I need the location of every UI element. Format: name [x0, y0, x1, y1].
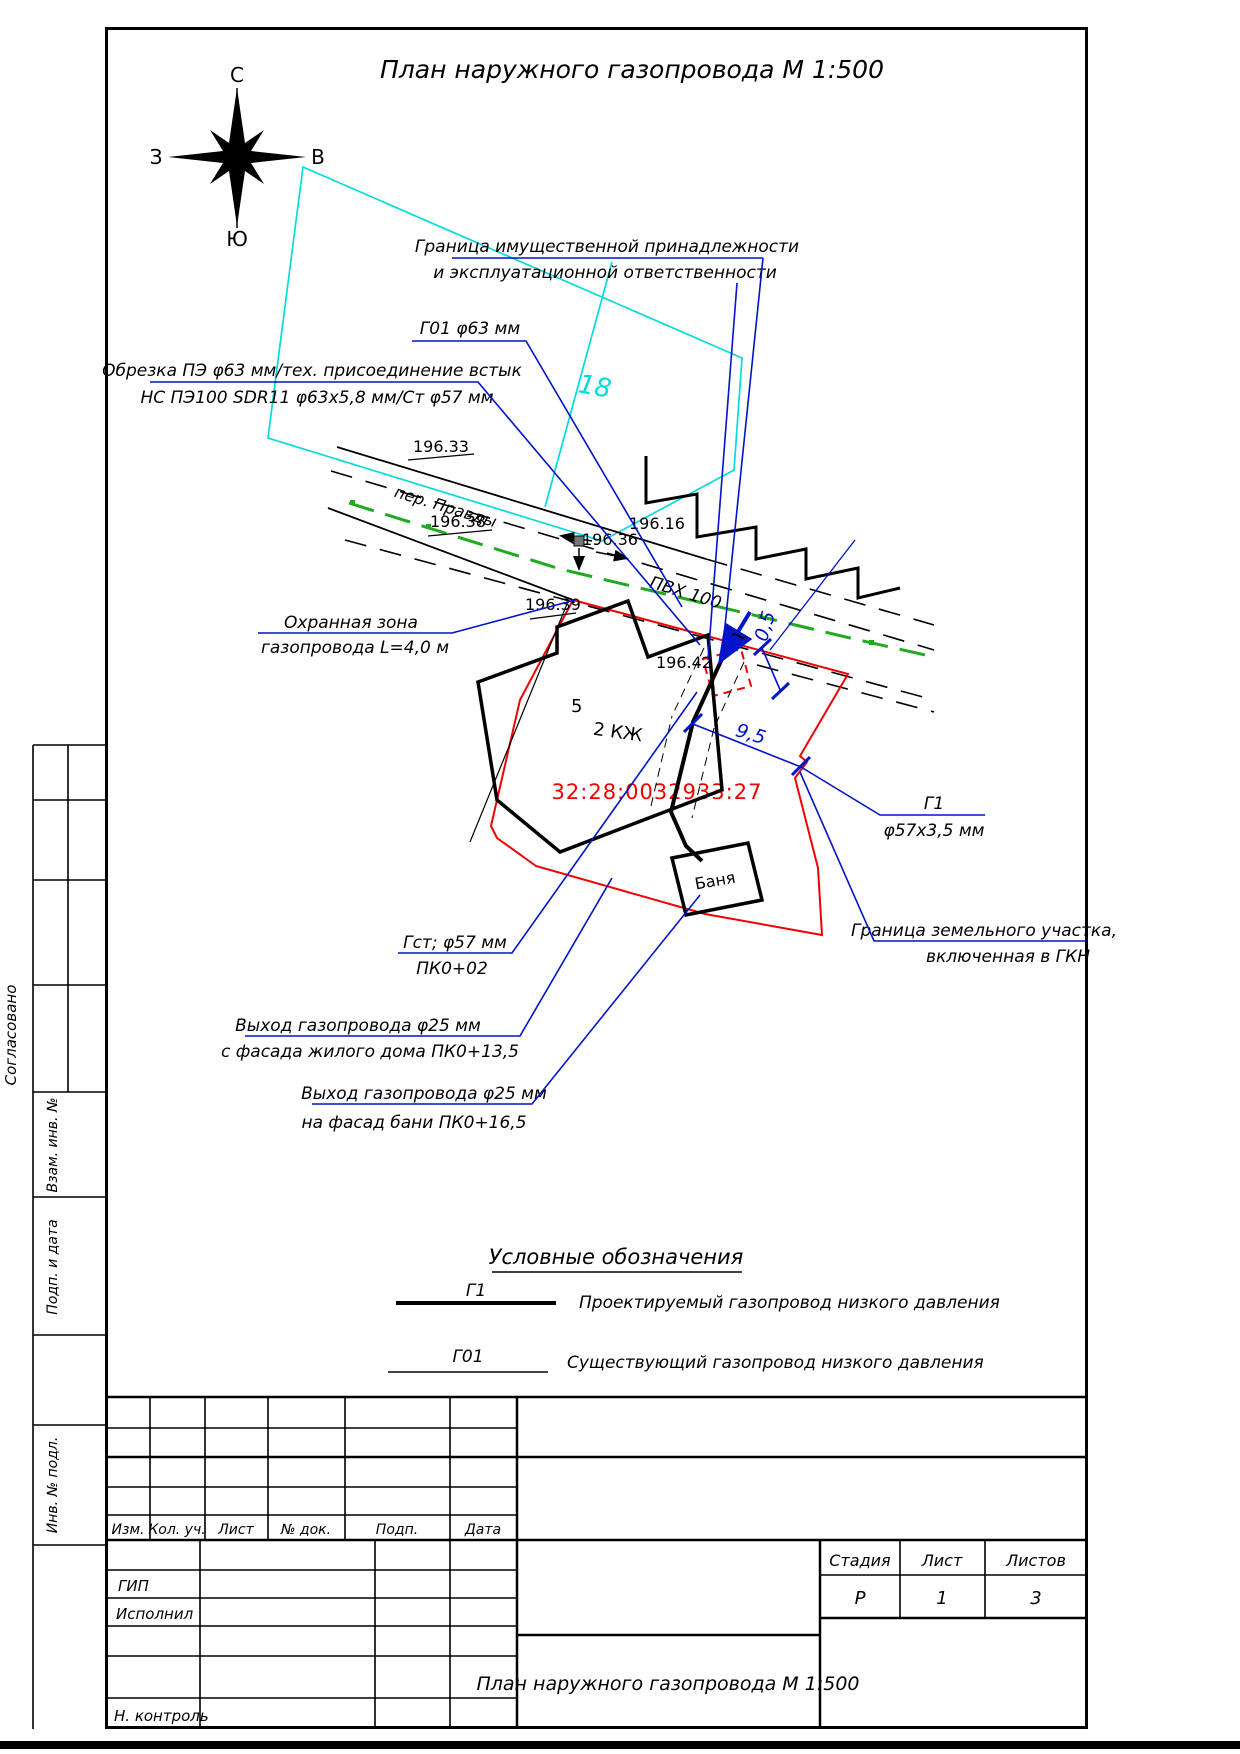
rev-header-doc: № док.: [280, 1522, 331, 1538]
sidebar-label-agreed: Согласовано: [2, 985, 20, 1086]
elevation-196-38: 196.38: [430, 512, 486, 531]
svg-text:φ57х3,5 мм: φ57х3,5 мм: [884, 821, 985, 841]
page-bottom-bar: [0, 1741, 1240, 1749]
svg-text:включенная в ГКН: включенная в ГКН: [926, 947, 1090, 967]
svg-text:Гст; φ57 мм: Гст; φ57 мм: [403, 933, 507, 953]
svg-text:НС ПЭ100 SDR11 φ63х5,8 мм/Ст φ: НС ПЭ100 SDR11 φ63х5,8 мм/Ст φ57 мм: [140, 388, 493, 408]
stage-value: Р: [855, 1588, 866, 1609]
compass-star: [168, 88, 306, 226]
svg-text:Г1: Г1: [924, 794, 944, 814]
legend-item-g01-text: Существующий газопровод низкого давления: [567, 1353, 984, 1373]
sidebar-label-inv: Инв. № подл.: [45, 1437, 61, 1534]
compass-rose: С Ю З В: [150, 63, 325, 251]
dimension-9-5-value: 9,5: [733, 719, 768, 749]
legend-item-g01-label: Г01: [452, 1347, 483, 1367]
elevation-196-33: 196.33: [413, 437, 469, 456]
compass-south: Ю: [226, 227, 248, 251]
sidebar-label-podp: Подп. и дата: [45, 1219, 61, 1314]
annotation-ownership-boundary: Граница имущественной принадлежности и э…: [415, 237, 799, 660]
sheet-frame: [107, 29, 1087, 1728]
stage-header: Стадия: [829, 1551, 891, 1570]
svg-text:на фасад бани ПК0+16,5: на фасад бани ПК0+16,5: [301, 1113, 526, 1133]
svg-text:и эксплуатационной ответственн: и эксплуатационной ответственности: [433, 263, 777, 283]
sheet-value: 1: [936, 1588, 947, 1609]
annotation-g1-pipe: Г1 φ57х3,5 мм: [801, 767, 985, 841]
rev-header-kol: Кол. уч.: [148, 1522, 205, 1538]
drawing-sheet: Согласовано Взам. инв. № Подп. и дата Ин…: [0, 0, 1240, 1754]
bath-label: Баня: [693, 868, 737, 894]
compass-north: С: [230, 63, 244, 87]
doc-title: План наружного газопровода М 1:500: [476, 1673, 859, 1695]
sidebar-grid: [33, 745, 105, 1729]
sheets-header: Листов: [1005, 1551, 1066, 1570]
titleblock-texts: Изм. Кол. уч. Лист № док. Подп. Дата ГИП…: [112, 1522, 1066, 1725]
svg-text:Г01 φ63 мм: Г01 φ63 мм: [420, 319, 521, 339]
rev-header-data: Дата: [464, 1522, 501, 1538]
house-number: 5: [571, 696, 582, 717]
cadastral-number: 32:28:0032933:27: [552, 780, 763, 804]
neighbor-parcel-number: 18: [576, 369, 614, 404]
sheet-header: Лист: [921, 1551, 963, 1570]
rev-header-podp: Подп.: [376, 1522, 418, 1538]
svg-text:с фасада жилого дома ПК0+13,5: с фасада жилого дома ПК0+13,5: [221, 1042, 519, 1062]
elevation-196-42: 196.42: [656, 653, 712, 672]
role-gip: ГИП: [118, 1577, 149, 1595]
svg-text:Выход газопровода φ25 мм: Выход газопровода φ25 мм: [235, 1016, 481, 1036]
svg-text:ПК0+02: ПК0+02: [416, 959, 488, 979]
annotation-land-boundary: Граница земельного участка, включенная в…: [800, 772, 1117, 967]
house-label: 2 КЖ: [592, 719, 644, 747]
annotation-exit-bath: Выход газопровода φ25 мм на фасад бани П…: [301, 895, 700, 1133]
annotation-gst: Гст; φ57 мм ПК0+02: [398, 692, 697, 979]
svg-text:Охранная зона: Охранная зона: [284, 613, 418, 633]
sidebar-label-vzam: Взам. инв. №: [45, 1097, 61, 1192]
compass-west: З: [150, 145, 163, 169]
legend-item-g1-label: Г1: [466, 1281, 486, 1301]
compass-east: В: [311, 145, 325, 169]
svg-text:Обрезка ПЭ φ63 мм/тех. присоед: Обрезка ПЭ φ63 мм/тех. присоединение вст…: [102, 361, 522, 381]
legend-item-g1-text: Проектируемый газопровод низкого давлени…: [579, 1293, 1000, 1313]
legend-heading: Условные обозначения: [489, 1245, 744, 1269]
survey-point: [574, 536, 584, 546]
legend: Условные обозначения Г1 Проектируемый га…: [388, 1245, 1000, 1373]
role-executor: Исполнил: [116, 1605, 194, 1623]
svg-text:Граница имущественной принадле: Граница имущественной принадлежности: [415, 237, 799, 257]
page-title: План наружного газопровода М 1:500: [380, 55, 884, 84]
role-ncontrol: Н. контроль: [114, 1707, 209, 1725]
sheets-value: 3: [1030, 1588, 1041, 1609]
rev-header-izm: Изм.: [112, 1522, 145, 1538]
svg-text:Выход газопровода φ25 мм: Выход газопровода φ25 мм: [301, 1084, 547, 1104]
rev-header-list: Лист: [217, 1522, 254, 1538]
svg-text:газопровода L=4,0 м: газопровода L=4,0 м: [261, 638, 449, 658]
neighbor-parcel-boundary: [268, 167, 742, 541]
svg-text:Граница земельного участка,: Граница земельного участка,: [851, 921, 1117, 941]
